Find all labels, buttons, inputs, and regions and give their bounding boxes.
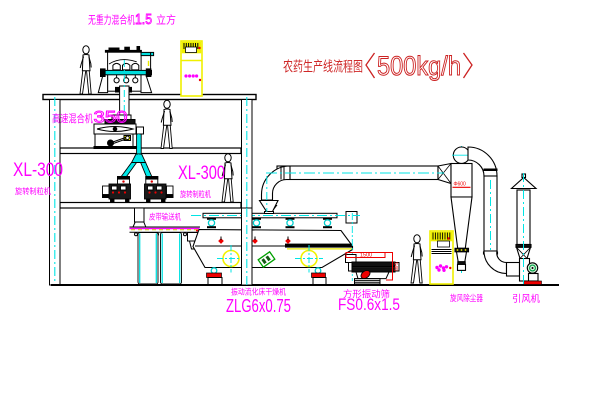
- svg-text:FS0.6x1.5: FS0.6x1.5: [338, 295, 400, 314]
- svg-text:XL-300: XL-300: [178, 163, 225, 184]
- svg-text:立方: 立方: [156, 13, 176, 27]
- svg-text:旋风除尘器: 旋风除尘器: [450, 293, 483, 303]
- svg-text:545: 545: [392, 262, 398, 271]
- svg-text:XL-300: XL-300: [13, 160, 63, 181]
- svg-text:引风机: 引风机: [512, 293, 540, 305]
- svg-text:高速混合机: 高速混合机: [52, 112, 93, 125]
- svg-text:1500: 1500: [360, 253, 372, 259]
- svg-text:ZLG6x0.75: ZLG6x0.75: [226, 296, 291, 316]
- svg-text:350: 350: [94, 109, 128, 127]
- svg-text:农药生产线流程图: 农药生产线流程图: [283, 59, 363, 75]
- svg-text:无重力混合机: 无重力混合机: [88, 13, 135, 27]
- svg-text:500kg/h: 500kg/h: [377, 51, 461, 81]
- svg-text:振动流化床干燥机: 振动流化床干燥机: [231, 287, 286, 297]
- svg-text:皮带输送机: 皮带输送机: [149, 212, 181, 222]
- svg-text:旋转制粒机: 旋转制粒机: [15, 186, 51, 196]
- svg-text:1.5: 1.5: [135, 11, 152, 28]
- svg-text:Φ600: Φ600: [454, 182, 467, 188]
- svg-text:旋转制粒机: 旋转制粒机: [180, 189, 211, 199]
